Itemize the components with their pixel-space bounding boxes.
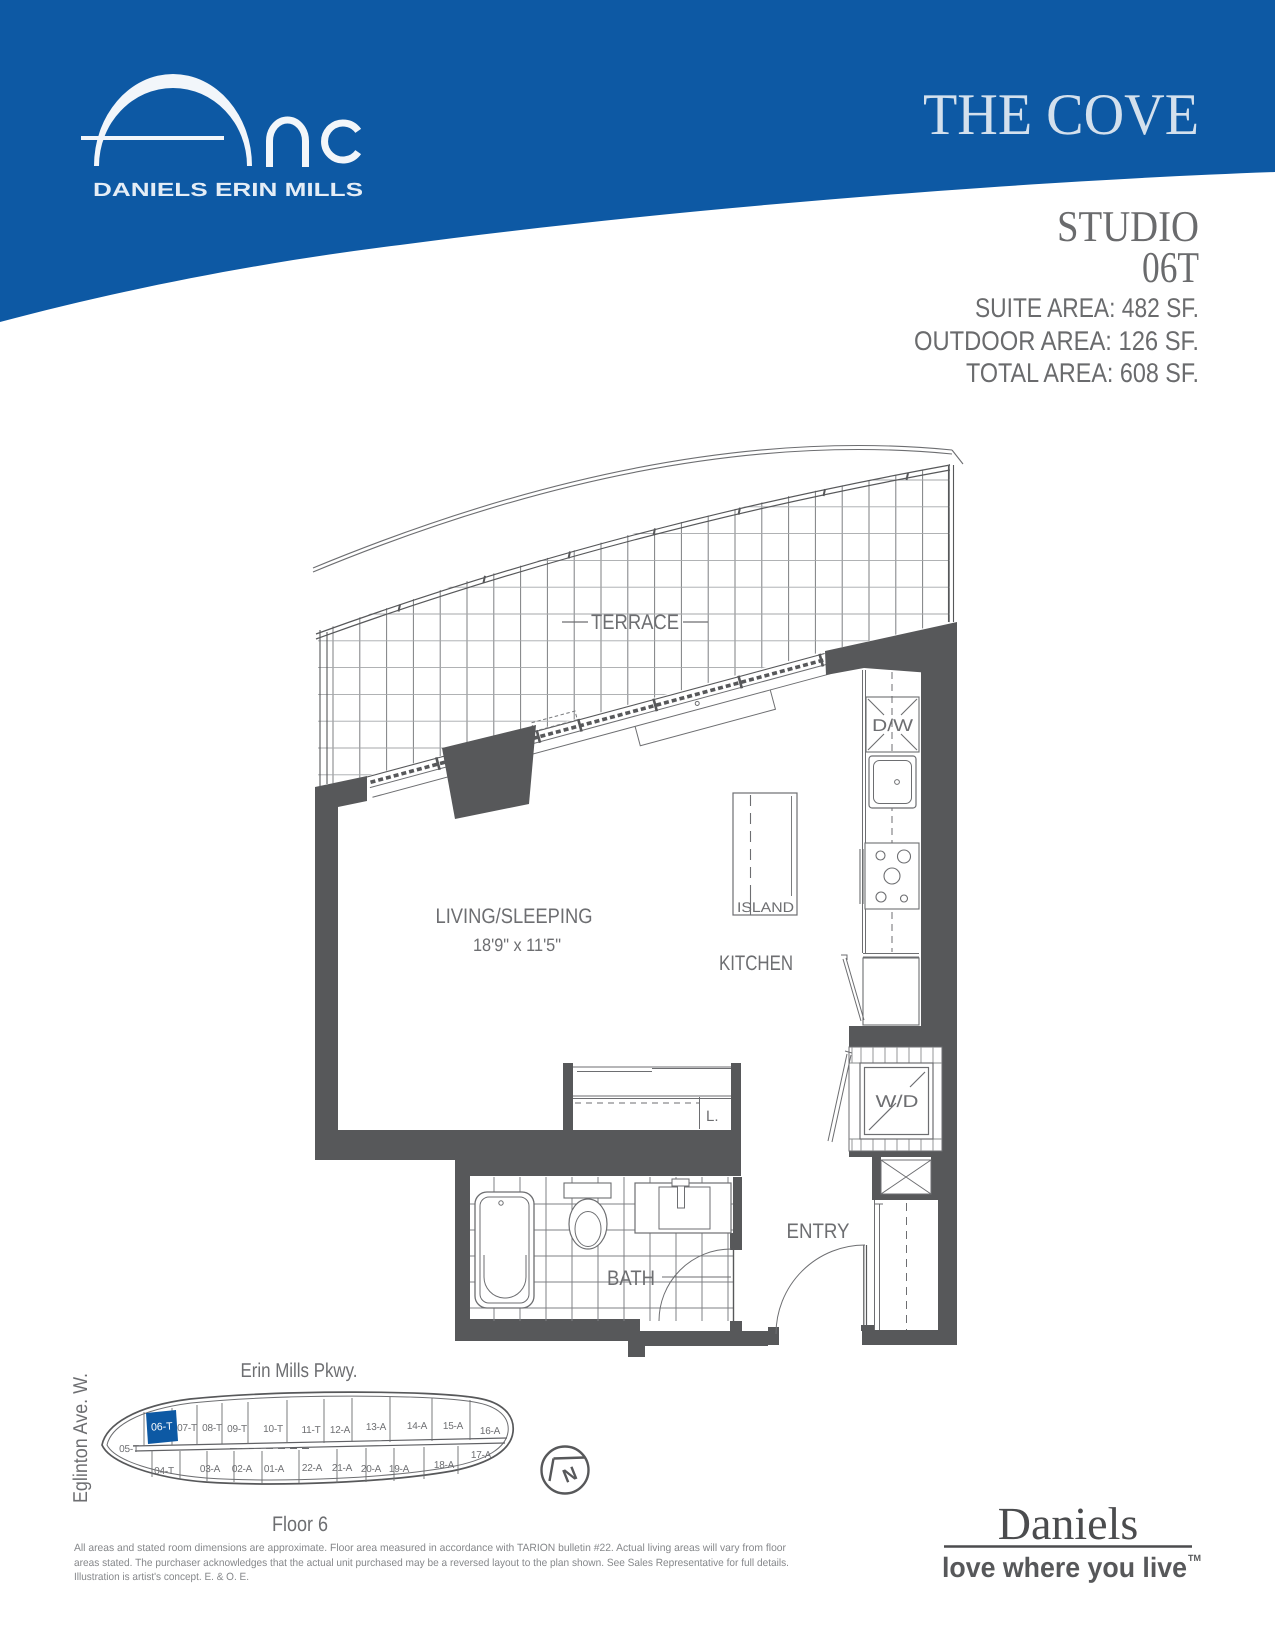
svg-text:TERRACE: TERRACE (591, 611, 679, 634)
svg-text:09-T: 09-T (227, 1424, 247, 1435)
svg-text:17-A: 17-A (471, 1450, 492, 1461)
svg-text:03-A: 03-A (200, 1464, 221, 1475)
svg-text:12-A: 12-A (330, 1425, 351, 1436)
svg-text:Illustration is artist's conce: Illustration is artist's concept. E. & O… (74, 1571, 249, 1583)
svg-text:KITCHEN: KITCHEN (719, 952, 793, 975)
svg-text:01-A: 01-A (264, 1464, 285, 1475)
svg-text:02-A: 02-A (232, 1464, 253, 1475)
svg-text:OUTDOOR AREA: 126 SF.: OUTDOOR AREA: 126 SF. (914, 326, 1199, 356)
svg-text:19-A: 19-A (389, 1464, 410, 1475)
svg-text:16-A: 16-A (480, 1426, 501, 1437)
svg-text:W/D: W/D (876, 1092, 919, 1111)
svg-text:SUITE AREA: 482 SF.: SUITE AREA: 482 SF. (975, 293, 1199, 323)
svg-text:Eglinton Ave. W.: Eglinton Ave. W. (70, 1373, 92, 1503)
svg-text:love where you live: love where you live (942, 1552, 1187, 1583)
svg-text:ISLAND: ISLAND (737, 899, 794, 915)
svg-text:21-A: 21-A (332, 1463, 353, 1474)
svg-text:11-T: 11-T (301, 1425, 320, 1436)
svg-text:Floor 6: Floor 6 (272, 1513, 328, 1536)
svg-text:TM: TM (1188, 1553, 1201, 1563)
svg-text:14-A: 14-A (407, 1421, 428, 1432)
svg-text:D/W: D/W (872, 716, 913, 735)
svg-text:05-T: 05-T (119, 1444, 139, 1455)
svg-text:L.: L. (706, 1108, 719, 1125)
svg-text:THE COVE: THE COVE (923, 81, 1199, 147)
svg-text:ENTRY: ENTRY (787, 1220, 850, 1243)
svg-text:08-T: 08-T (202, 1423, 222, 1434)
svg-text:13-A: 13-A (366, 1422, 387, 1433)
svg-text:All areas and stated room dime: All areas and stated room dimensions are… (74, 1542, 786, 1554)
svg-text:22-A: 22-A (302, 1463, 323, 1474)
svg-text:10-T: 10-T (263, 1424, 283, 1435)
svg-text:Daniels: Daniels (998, 1498, 1139, 1549)
svg-text:DANIELS ERIN MILLS: DANIELS ERIN MILLS (93, 180, 363, 201)
svg-text:BATH: BATH (607, 1267, 655, 1290)
svg-text:Erin Mills Pkwy.: Erin Mills Pkwy. (241, 1360, 358, 1382)
svg-text:areas stated. The purchaser ac: areas stated. The purchaser acknowledges… (74, 1557, 789, 1569)
svg-text:06T: 06T (1142, 243, 1199, 292)
svg-text:18-A: 18-A (434, 1460, 455, 1471)
svg-text:20-A: 20-A (361, 1464, 382, 1475)
svg-text:06-T: 06-T (151, 1420, 174, 1433)
svg-text:18'9" x 11'5": 18'9" x 11'5" (473, 935, 561, 955)
svg-text:07-T: 07-T (177, 1423, 197, 1434)
svg-text:LIVING/SLEEPING: LIVING/SLEEPING (436, 905, 593, 928)
svg-text:15-A: 15-A (443, 1421, 464, 1432)
svg-text:TOTAL AREA: 608 SF.: TOTAL AREA: 608 SF. (966, 358, 1199, 388)
svg-text:04-T: 04-T (154, 1466, 174, 1477)
